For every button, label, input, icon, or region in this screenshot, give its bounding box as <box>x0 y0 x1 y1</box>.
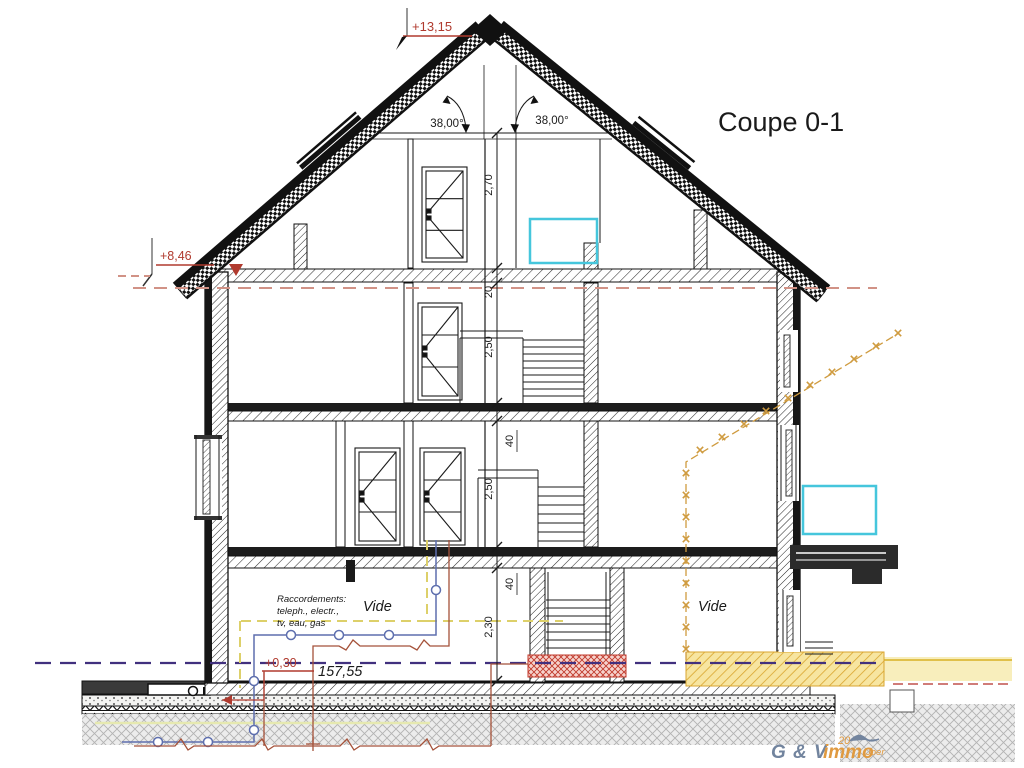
window-left-wall <box>194 435 222 520</box>
dim-floor1-height: 2,50 <box>483 478 495 499</box>
eave-level-label: +8,46 <box>160 249 192 263</box>
red-crosshatch-zone <box>528 655 626 677</box>
dim-attic-height: 2,70 <box>483 174 495 195</box>
floor-slab-2 <box>206 403 798 421</box>
duct-stub <box>346 560 355 582</box>
raccordements-line2: teleph., electr., <box>277 606 339 617</box>
window-right-wall-floor1 <box>778 425 799 501</box>
left-exterior-slab <box>82 681 213 696</box>
angle-label-right: 38,00° <box>535 115 568 127</box>
raccordements-line3: tv, eau, gas <box>277 618 326 629</box>
inspection-box <box>890 690 914 712</box>
dim-slab2: 40 <box>504 435 516 447</box>
logo-joer: Joer <box>865 747 885 758</box>
logo-years: 20 <box>837 735 851 747</box>
raccordements-line1: Raccordements: <box>277 594 347 605</box>
dim-slab1: 40 <box>504 578 516 590</box>
drain-pipe-icon <box>189 687 198 696</box>
yellow-hatch-zone <box>686 652 884 686</box>
altitude-label: 157,55 <box>318 664 363 680</box>
ridge-level-label: +13,15 <box>412 19 452 34</box>
drawing-title: Coupe 0-1 <box>718 107 844 137</box>
logo-gv: G & V <box>771 742 828 763</box>
vide-label-right: Vide <box>698 599 727 615</box>
window-right-wall-basement <box>779 590 800 652</box>
ground-level-label: +0,30 <box>265 656 297 670</box>
dim-attic-slab: 20 <box>483 286 495 298</box>
knee-post-right <box>694 210 707 269</box>
floor-slab-1 <box>206 547 798 568</box>
window-right-wall-floor2 <box>780 330 798 392</box>
attic-floor-slab <box>206 269 798 282</box>
section-drawing: 2,70 20 2,50 40 2,50 40 2,30 38,00° 38,0… <box>0 0 1024 768</box>
angle-label-left: 38,00° <box>430 118 463 130</box>
dim-floor2-height: 2,50 <box>483 336 495 357</box>
vide-label-left: Vide <box>363 599 392 615</box>
knee-post-left <box>294 224 307 269</box>
dim-basement-height: 2,30 <box>483 616 495 637</box>
